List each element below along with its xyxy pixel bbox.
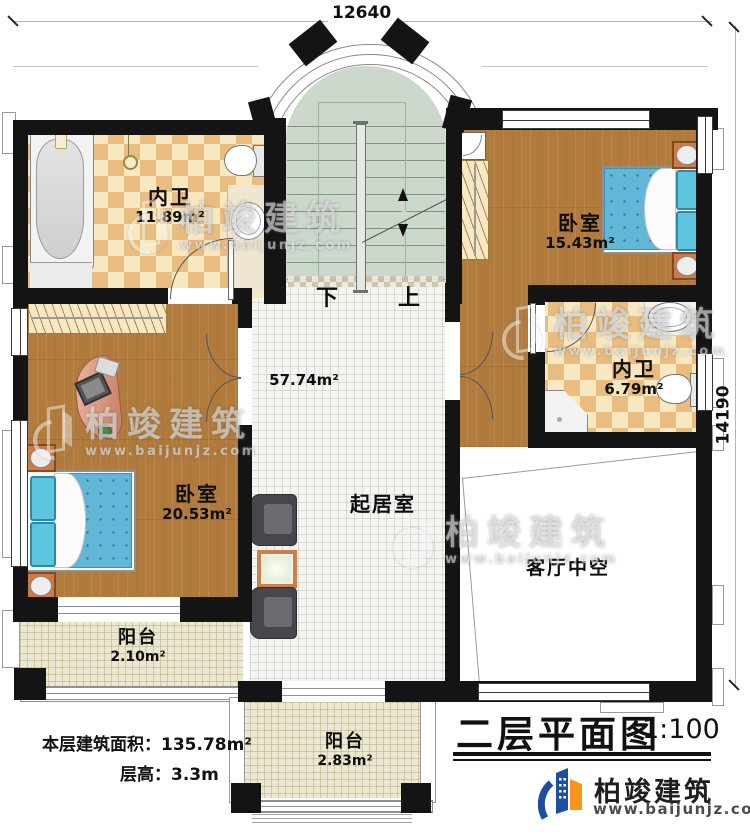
- room-label-bath-right: 内卫 6.79m²: [604, 358, 663, 398]
- threshold-line: [58, 606, 180, 607]
- floor-area-value: 135.78m²: [161, 735, 252, 755]
- room-area: 20.53m²: [162, 506, 232, 523]
- void-outline-left: [462, 478, 480, 683]
- title-scale: 1:100: [642, 714, 720, 745]
- room-label-living: 起居室: [350, 493, 416, 516]
- sink-basin: [236, 207, 261, 235]
- eave-line: [13, 66, 258, 67]
- dimension-tick: [728, 21, 739, 32]
- room-name: 内卫: [604, 358, 663, 381]
- duct-notch: [460, 132, 486, 160]
- threshold-line: [282, 695, 385, 696]
- floor-height-info: 层高：3.3m: [120, 760, 219, 785]
- sink: [648, 302, 692, 332]
- floor-area-label: 本层建筑面积：: [42, 735, 161, 755]
- logo-orange-tower: [570, 779, 582, 810]
- room-area: 57.74m²: [269, 372, 339, 389]
- floor-plan: 12640 14190 下 上: [0, 0, 750, 835]
- bathtub-faucet: [55, 133, 67, 149]
- title-underline-thick: [453, 752, 711, 756]
- door-leaf: [228, 240, 234, 300]
- window: [697, 353, 713, 411]
- dimension-width: 12640: [328, 3, 395, 23]
- stair-direction-arrow-up: [398, 188, 408, 201]
- balcony-railing: [20, 686, 245, 702]
- wardrobe: [459, 160, 489, 260]
- floor-height-label: 层高：: [120, 765, 171, 785]
- wall: [13, 120, 28, 302]
- window: [478, 683, 650, 701]
- balcony-pillar: [401, 783, 431, 813]
- dimension-line-right: [735, 26, 736, 688]
- room-name: 起居室: [350, 493, 416, 516]
- room-name: 阳台: [317, 732, 372, 753]
- armchair: [250, 587, 297, 639]
- title-underline-thin: [453, 759, 711, 761]
- toilet-bowl: [224, 145, 257, 176]
- stair-threshold-mosaic: [288, 276, 444, 287]
- balcony-step-lines: [252, 814, 412, 823]
- pillow: [30, 522, 56, 567]
- stair-railing-cap: [353, 290, 368, 293]
- threshold-line: [58, 613, 180, 614]
- room-label-balcony-bottom: 阳台 2.83m²: [317, 732, 372, 769]
- stair-up-label: 上: [398, 280, 420, 312]
- pillow: [676, 211, 698, 251]
- pendant-cord: [128, 132, 129, 156]
- logo-swoosh: [541, 783, 551, 818]
- bathtub: [30, 130, 94, 270]
- sink: [231, 202, 266, 240]
- room-area: 15.43m²: [545, 235, 615, 252]
- room-name: 客厅中空: [526, 558, 610, 580]
- void-outline-top: [462, 451, 698, 479]
- balcony-opening: [282, 681, 385, 702]
- brand-website: www.baijunjz.com: [593, 800, 750, 818]
- wall: [446, 108, 462, 304]
- room-area: 6.79m²: [604, 381, 663, 398]
- room-area: 11.89m²: [135, 209, 205, 226]
- nightstand: [26, 572, 56, 600]
- watermark-brand: 柏竣建筑: [445, 516, 618, 550]
- bed-blanket: [644, 168, 676, 250]
- door-leaf: [530, 303, 536, 354]
- nightstand: [26, 444, 56, 472]
- window-sill: [712, 668, 724, 706]
- pillow: [676, 170, 698, 210]
- wall: [528, 432, 712, 448]
- monitor-screen: [81, 377, 105, 399]
- toilet: [224, 143, 266, 177]
- pillow: [30, 476, 56, 521]
- wall: [13, 120, 270, 135]
- wall: [264, 118, 286, 304]
- window: [502, 110, 650, 129]
- window: [11, 420, 28, 567]
- room-name: 阳台: [110, 628, 165, 649]
- dimension-height: 14190: [714, 381, 734, 448]
- window-sill: [712, 128, 724, 170]
- room-name: 卧室: [545, 212, 615, 235]
- brand-logo: [538, 766, 590, 820]
- bathtub-basin: [36, 139, 84, 259]
- page-title: 二层平面图: [456, 704, 661, 758]
- shower-drain: [557, 417, 562, 422]
- balcony-pillar: [14, 668, 46, 700]
- wardrobe: [28, 299, 167, 334]
- threshold-line: [282, 688, 385, 689]
- sink-basin: [653, 307, 687, 327]
- balcony-pillar: [231, 783, 261, 813]
- dimension-tick: [728, 679, 739, 690]
- floor-height-value: 3.3m: [171, 765, 219, 785]
- room-name: 内卫: [135, 186, 205, 209]
- duct-curve: [463, 135, 482, 156]
- room-label-void: 客厅中空: [526, 558, 610, 580]
- stair-direction-arrow-down: [398, 224, 408, 237]
- armchair: [250, 494, 297, 546]
- stair-down-label: 下: [316, 280, 338, 312]
- window: [697, 116, 713, 174]
- room-area-living: 57.74m²: [269, 372, 339, 389]
- stair-railing-cap: [353, 121, 368, 124]
- side-table-top: [263, 556, 291, 582]
- room-label-bedroom-right: 卧室 15.43m²: [545, 212, 615, 252]
- eave-line: [482, 66, 708, 67]
- room-area: 2.83m²: [317, 753, 372, 769]
- pendant-lamp: [123, 155, 138, 170]
- room-label-bedroom-left: 卧室 20.53m²: [162, 483, 232, 523]
- logo-blue-tower: [556, 768, 568, 814]
- desk-plant: [98, 424, 112, 438]
- floor-area-info: 本层建筑面积：135.78m²: [42, 730, 252, 755]
- room-area: 2.10m²: [110, 649, 165, 665]
- door-opening: [445, 322, 460, 400]
- room-label-balcony-left: 阳台 2.10m²: [110, 628, 165, 665]
- room-name: 卧室: [162, 483, 232, 506]
- stair-railing: [356, 124, 366, 292]
- room-label-bath-top: 内卫 11.89m²: [135, 186, 205, 226]
- window: [11, 308, 28, 356]
- window-sill: [712, 585, 724, 625]
- wall: [528, 285, 712, 302]
- balcony-opening: [58, 597, 180, 622]
- side-table: [257, 550, 297, 588]
